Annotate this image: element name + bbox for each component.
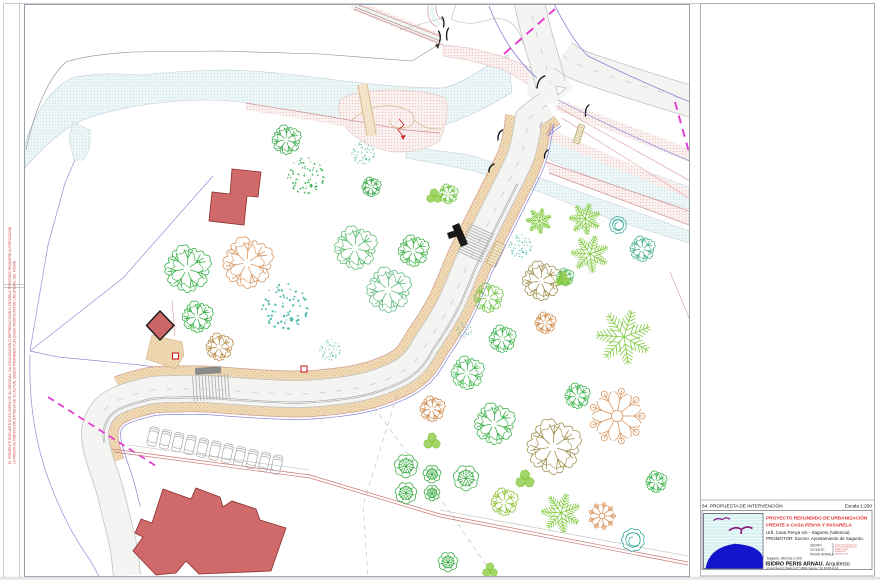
svg-text:VICENTE: VICENTE [810, 548, 825, 552]
svg-text:64. PROPUESTA DE INTERVENCIÓN: 64. PROPUESTA DE INTERVENCIÓN [702, 503, 783, 509]
svg-text:LA PREVIA AUTORIZACIÓN EXPRESA: LA PREVIA AUTORIZACIÓN EXPRESA DE SU AUT… [12, 260, 17, 464]
svg-text:SAGUNTO 13245: SAGUNTO 13245 [835, 553, 849, 556]
svg-text:PERIS ARNAU: PERIS ARNAU [810, 553, 833, 557]
svg-text:Sagunto, Abril de 2.009: Sagunto, Abril de 2.009 [767, 557, 802, 561]
svg-text:EL PRESENTE DOCUMENTO ES COPIA: EL PRESENTE DOCUMENTO ES COPIA DE SU ORI… [7, 226, 12, 464]
svg-text:Urb. Casa Penya s/n - Sagunto: Urb. Casa Penya s/n - Sagunto (Valencia)… [766, 530, 851, 535]
svg-text:C/ Camí Real, Nº 33-Esc 1ª-2ª: C/ Camí Real, Nº 33-Esc 1ª-2ª * 46500, S… [766, 566, 839, 570]
svg-text:PROMOTOR: Excmo. Ayuntamiento: PROMOTOR: Excmo. Ayuntamiento de Sagunto… [766, 536, 864, 541]
svg-text:ISIDRO: ISIDRO [810, 544, 822, 548]
svg-text:Escala 1:250: Escala 1:250 [845, 504, 872, 509]
svg-text:FRENTE A CASA PENYA Y PASARELA: FRENTE A CASA PENYA Y PASARELA [766, 523, 852, 529]
